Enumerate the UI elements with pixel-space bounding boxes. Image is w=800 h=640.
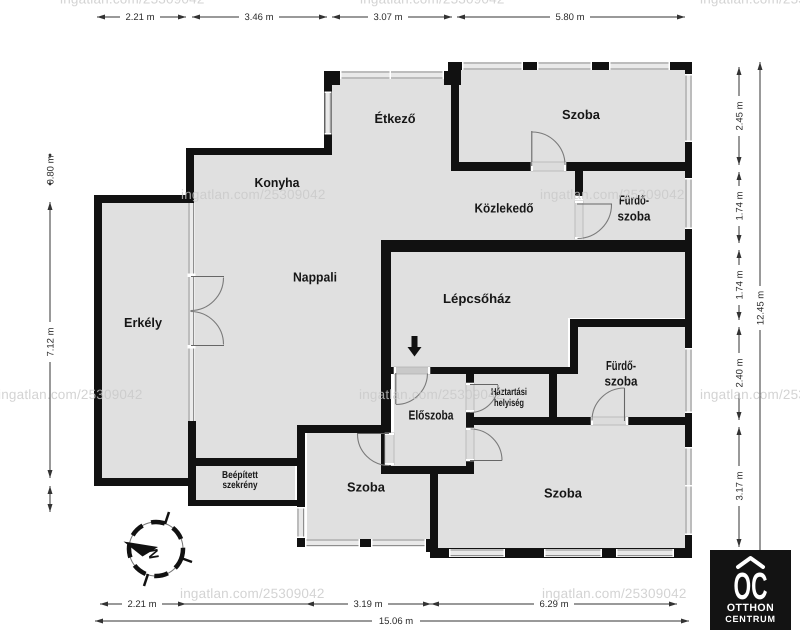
- svg-text:szekrény: szekrény: [223, 480, 258, 491]
- svg-text:ingatlan.com/25309042: ingatlan.com/25309042: [700, 0, 800, 7]
- svg-text:Étkező: Étkező: [375, 111, 416, 126]
- svg-text:0.80 m: 0.80 m: [46, 155, 57, 184]
- svg-text:2.45 m: 2.45 m: [735, 101, 746, 130]
- svg-text:Szoba: Szoba: [544, 486, 583, 501]
- svg-text:ingatlan.com/25309042: ingatlan.com/25309042: [360, 0, 505, 7]
- svg-text:ingatlan.com/25309042: ingatlan.com/25309042: [180, 586, 325, 601]
- svg-text:3.07 m: 3.07 m: [373, 12, 402, 23]
- svg-text:2.21 m: 2.21 m: [127, 599, 156, 610]
- svg-text:OTTHON: OTTHON: [727, 602, 774, 614]
- svg-text:Előszoba: Előszoba: [409, 408, 455, 423]
- svg-text:1.74 m: 1.74 m: [735, 191, 746, 220]
- svg-text:ingatlan.com/25309042: ingatlan.com/25309042: [60, 0, 205, 7]
- svg-text:3.46 m: 3.46 m: [244, 12, 273, 23]
- svg-text:Szoba: Szoba: [562, 107, 601, 122]
- svg-text:Szoba: Szoba: [347, 480, 386, 495]
- svg-text:1.74 m: 1.74 m: [735, 270, 746, 299]
- svg-text:ingatlan.com/25309042: ingatlan.com/25309042: [181, 187, 326, 202]
- svg-text:12.45 m: 12.45 m: [756, 291, 767, 325]
- svg-text:ingatlan.com/25309042: ingatlan.com/25309042: [540, 187, 685, 202]
- svg-text:15.06 m: 15.06 m: [379, 616, 413, 627]
- svg-text:CENTRUM: CENTRUM: [725, 614, 776, 624]
- svg-text:Erkély: Erkély: [124, 315, 163, 330]
- svg-text:2.21 m: 2.21 m: [125, 12, 154, 23]
- svg-text:2.40 m: 2.40 m: [735, 358, 746, 387]
- svg-text:7.12 m: 7.12 m: [46, 327, 57, 356]
- svg-text:Közlekedő: Közlekedő: [475, 201, 534, 216]
- svg-text:3.17 m: 3.17 m: [735, 471, 746, 500]
- svg-text:3.19 m: 3.19 m: [353, 599, 382, 610]
- svg-text:ingatlan.com/25309042: ingatlan.com/25309042: [359, 387, 504, 402]
- svg-text:szoba: szoba: [618, 209, 652, 224]
- svg-text:ingatlan.com/25309042: ingatlan.com/25309042: [0, 387, 143, 402]
- svg-text:Nappali: Nappali: [293, 270, 337, 285]
- svg-text:szoba: szoba: [605, 374, 639, 389]
- svg-text:Lépcsőház: Lépcsőház: [443, 291, 512, 306]
- svg-text:Fürdő-: Fürdő-: [606, 358, 636, 373]
- svg-text:ingatlan.com/25309042: ingatlan.com/25309042: [542, 586, 687, 601]
- svg-text:5.80 m: 5.80 m: [555, 12, 584, 23]
- svg-text:ingatlan.com/25309042: ingatlan.com/25309042: [700, 387, 800, 402]
